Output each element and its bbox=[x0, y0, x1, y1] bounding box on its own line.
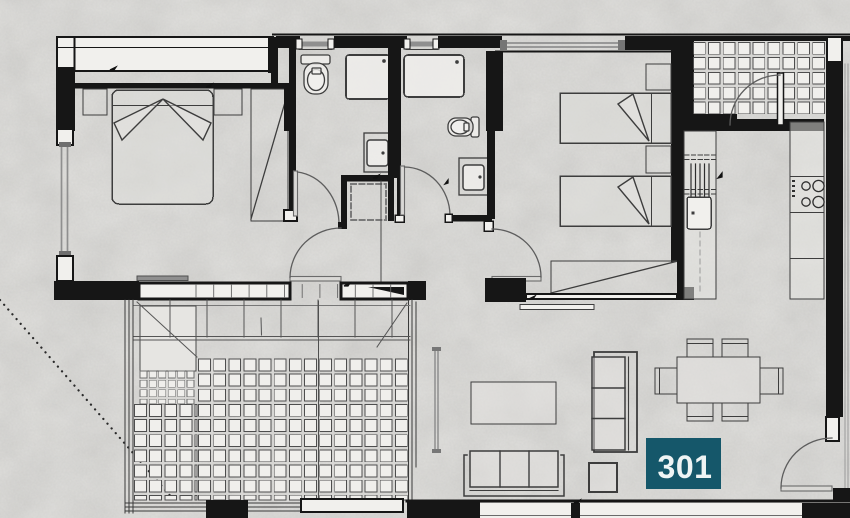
svg-text:301: 301 bbox=[658, 449, 713, 485]
